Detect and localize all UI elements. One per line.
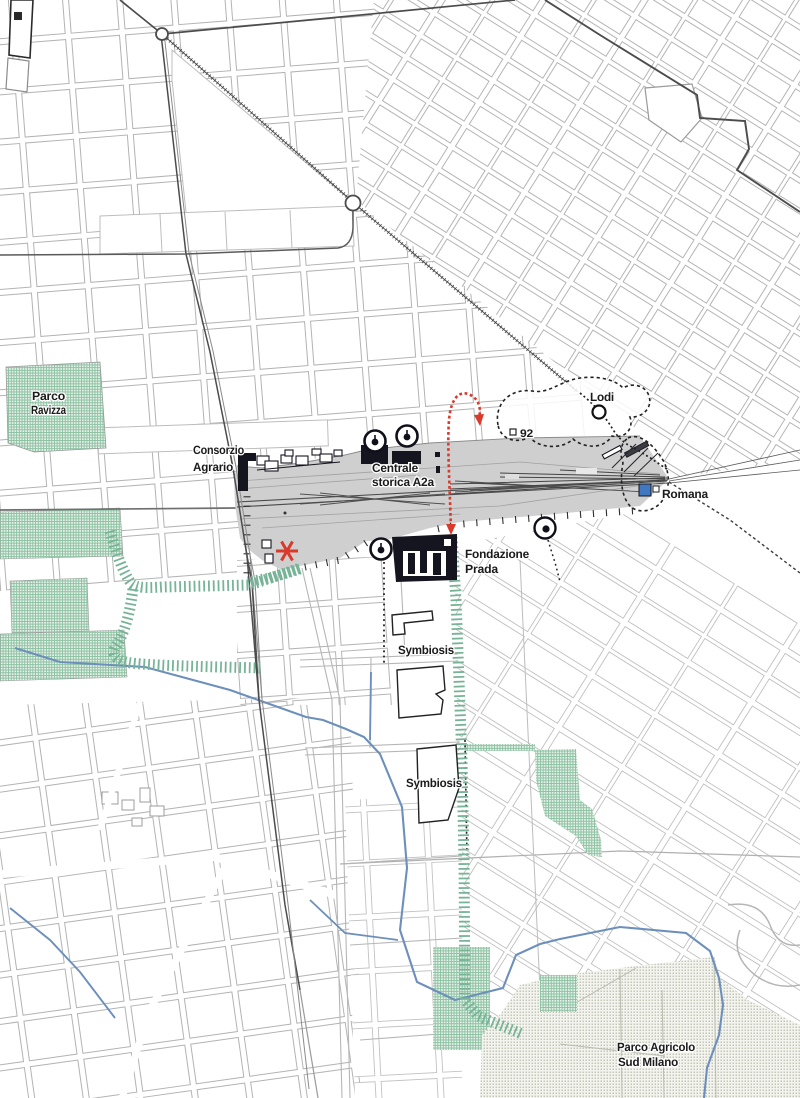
svg-text:Ravizza: Ravizza — [31, 403, 66, 417]
svg-text:Symbiosis: Symbiosis — [406, 776, 462, 790]
svg-text:Consorzio: Consorzio — [193, 443, 244, 457]
svg-text:Lodi: Lodi — [590, 390, 614, 404]
svg-text:Parco Agricolo: Parco Agricolo — [617, 1040, 695, 1054]
svg-text:Fondazione: Fondazione — [465, 547, 530, 561]
svg-text:Romana: Romana — [662, 487, 709, 501]
svg-text:Symbiosis: Symbiosis — [398, 643, 454, 657]
svg-text:Centrale: Centrale — [372, 461, 419, 475]
svg-text:Parco: Parco — [32, 389, 65, 403]
svg-text:Agrario: Agrario — [193, 460, 233, 474]
svg-text:Sud Milano: Sud Milano — [618, 1055, 678, 1069]
svg-text:92: 92 — [520, 428, 533, 440]
svg-text:storica A2a: storica A2a — [372, 475, 435, 489]
svg-text:Prada: Prada — [465, 562, 499, 576]
